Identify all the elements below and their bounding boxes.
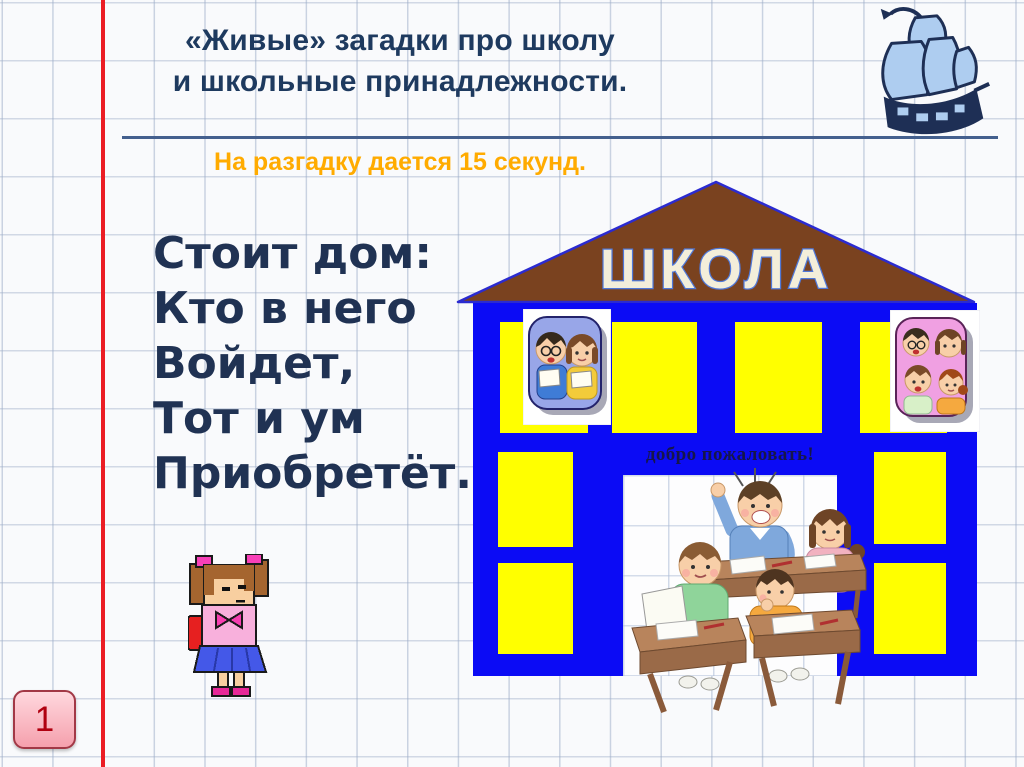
window xyxy=(874,452,946,544)
window-photo-two-children-icon xyxy=(523,309,611,425)
slide-number-badge[interactable]: 1 xyxy=(13,690,76,749)
window xyxy=(874,563,946,654)
window xyxy=(498,452,573,547)
slide-number: 1 xyxy=(35,700,54,740)
timer-note: На разгадку дается 15 секунд. xyxy=(140,148,660,177)
riddle-line: Кто в него xyxy=(153,281,493,336)
page-title: «Живые» загадки про школу и школьные при… xyxy=(140,20,660,102)
sailing-ship-icon xyxy=(862,2,1004,140)
title-line-2: и школьные принадлежности. xyxy=(140,61,660,102)
window xyxy=(612,322,697,433)
riddle-line: Приобретёт. xyxy=(153,446,493,501)
school-roof: ШКОЛА xyxy=(456,180,976,304)
title-line-1: «Живые» загадки про школу xyxy=(140,20,660,61)
school-sign-text: ШКОЛА xyxy=(600,237,832,300)
margin-line xyxy=(101,0,105,767)
riddle-line: Стоит дом: xyxy=(153,226,493,281)
window-photo-four-children-icon xyxy=(890,310,980,432)
schoolgirl-icon xyxy=(188,554,272,700)
riddle-line: Тот и ум xyxy=(153,391,493,446)
welcome-sign: добро пожаловать! xyxy=(619,444,841,466)
classroom-scene-icon xyxy=(612,466,880,718)
riddle-text: Стоит дом: Кто в него Войдет, Тот и ум П… xyxy=(153,226,493,501)
slide-page: «Живые» загадки про школу и школьные при… xyxy=(0,0,1024,767)
riddle-line: Войдет, xyxy=(153,336,493,391)
window xyxy=(498,563,573,654)
window xyxy=(735,322,822,433)
